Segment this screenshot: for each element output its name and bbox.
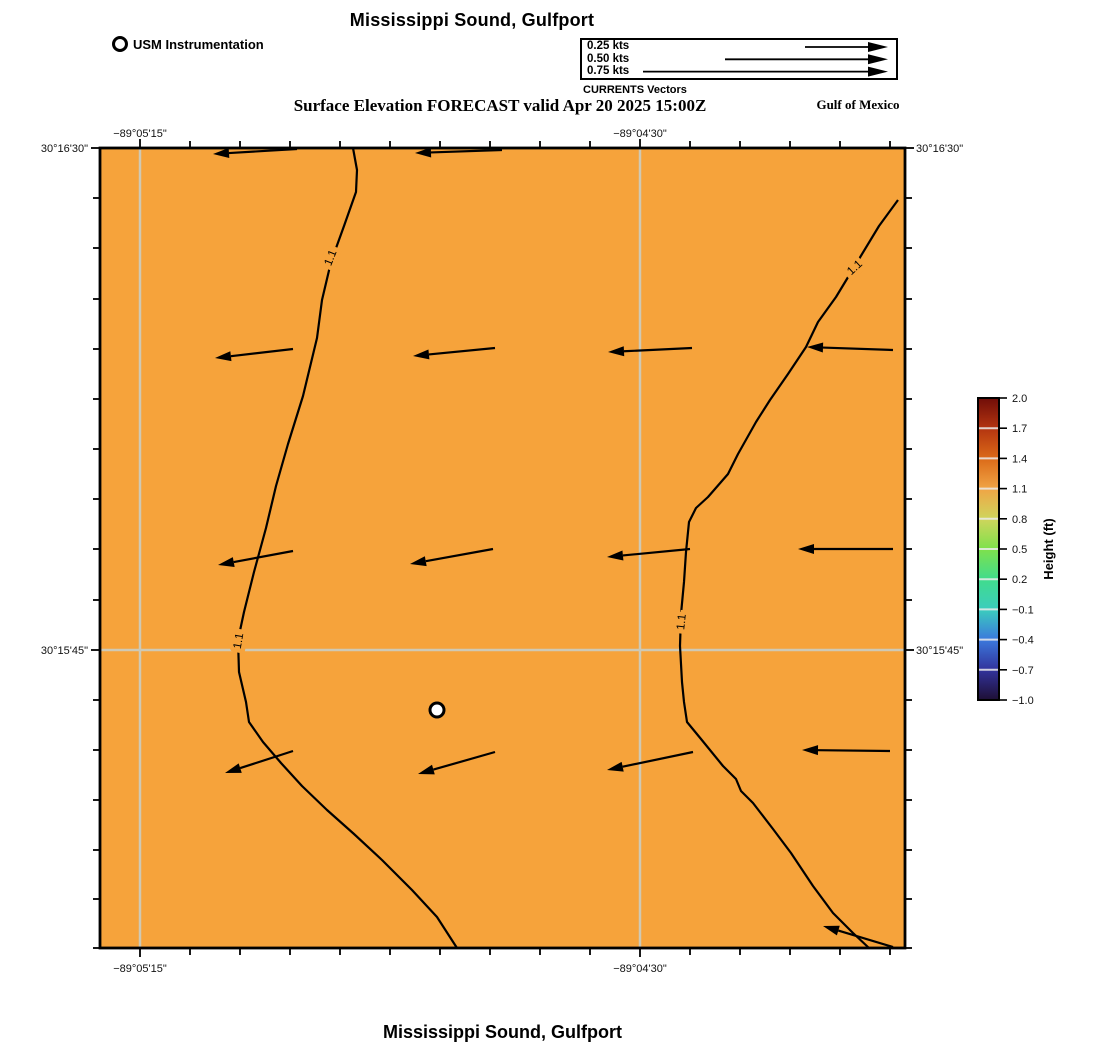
contour-label: 1.1	[675, 613, 689, 630]
colorbar-tick-label: 0.2	[1012, 574, 1027, 586]
colorbar-tick-label: 0.5	[1012, 544, 1027, 556]
colorbar-tick-label: 2.0	[1012, 393, 1027, 405]
sea-surface	[100, 148, 905, 948]
colorbar-tick-label: 0.8	[1012, 514, 1027, 526]
colorbar-axis-label: Height (ft)	[1041, 518, 1056, 579]
bottom-title: Mississippi Sound, Gulfport	[100, 1022, 905, 1043]
colorbar: 2.01.71.41.10.80.50.2−0.1−0.4−0.7−1.0Hei…	[978, 393, 1056, 707]
axis-label-longitude: −89°05'15"	[113, 128, 167, 140]
forecast-figure: { "title_top": "Mississippi Sound, Gulfp…	[0, 0, 1100, 1050]
station-marker-layer	[430, 703, 444, 717]
colorbar-tick-label: −0.7	[1012, 665, 1034, 677]
axis-label-latitude: 30°15'45"	[916, 645, 963, 657]
colorbar-tick-label: 1.1	[1012, 484, 1027, 496]
colorbar-tick-label: −1.0	[1012, 695, 1034, 707]
colorbar-tick-label: −0.4	[1012, 635, 1034, 647]
axis-label-longitude: −89°05'15"	[113, 963, 167, 975]
current-vector-shaft	[818, 750, 890, 751]
sea-surface-layer	[100, 148, 905, 948]
colorbar-tick-label: −0.1	[1012, 604, 1034, 616]
station-marker	[430, 703, 444, 717]
forecast-map: 1.11.11.11.1 −89°05'15"−89°04'30"−89°05'…	[0, 0, 1100, 1050]
axis-label-latitude: 30°16'30"	[41, 143, 88, 155]
axis-label-longitude: −89°04'30"	[613, 128, 667, 140]
axis-label-longitude: −89°04'30"	[613, 963, 667, 975]
colorbar-tick-label: 1.4	[1012, 453, 1027, 465]
colorbar-tick-label: 1.7	[1012, 423, 1027, 435]
axis-label-latitude: 30°16'30"	[916, 143, 963, 155]
axis-label-latitude: 30°15'45"	[41, 645, 88, 657]
